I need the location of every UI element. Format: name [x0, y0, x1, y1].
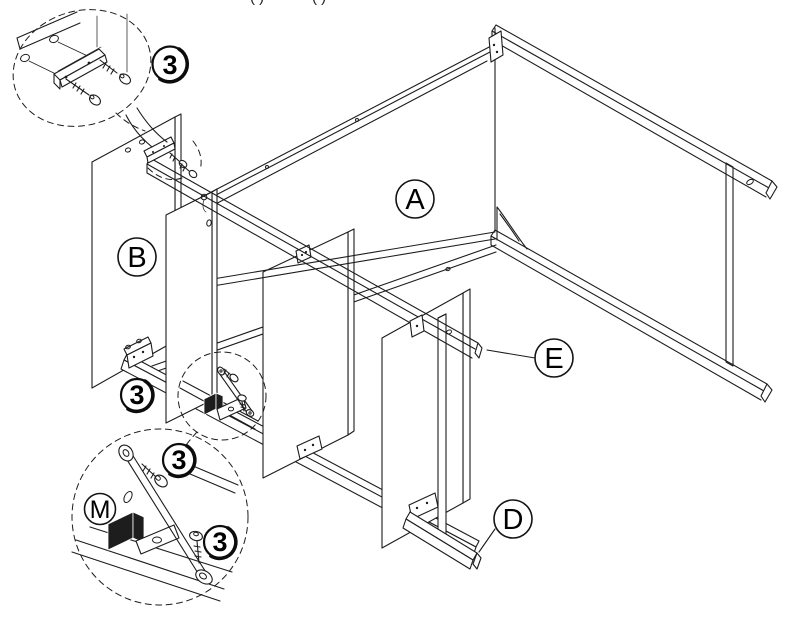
assembly-diagram: A B D E M 3 3 3 3 ( ) ( )	[0, 0, 802, 630]
leader-d	[479, 529, 495, 552]
part-label-a-text: A	[405, 184, 425, 216]
frame-assembly-a	[489, 25, 777, 402]
leader-e	[487, 350, 535, 358]
upper-stretcher-rail	[172, 45, 493, 227]
part-label-e-text: E	[544, 343, 563, 375]
hardware-callout-3-text: 3	[171, 445, 186, 475]
hardware-callout-3-left: 3	[121, 379, 153, 411]
cropped-top-text-left: ( )	[250, 0, 264, 6]
center-leg	[438, 314, 446, 541]
part-label-d-text: D	[503, 504, 524, 536]
part-label-a: A	[396, 180, 434, 218]
hardware-callout-3-bottom: 3	[204, 526, 236, 558]
screw	[100, 60, 132, 86]
part-label-d: D	[494, 500, 532, 538]
hardware-callout-3-text: 3	[129, 380, 144, 410]
screw	[66, 79, 102, 107]
screw	[189, 530, 204, 563]
hardware-callout-3-top: 3	[153, 47, 188, 82]
divider-panel-left	[166, 189, 217, 423]
hardware-callout-3-mid: 3	[163, 444, 195, 476]
part-label-e: E	[535, 339, 573, 377]
cropped-top-text-right: ( )	[312, 0, 326, 6]
hardware-callout-3-text: 3	[162, 50, 177, 80]
screw	[224, 369, 240, 383]
part-label-b: B	[118, 238, 156, 276]
part-label-b-text: B	[127, 242, 146, 274]
callout-balloon-bracket	[0, 0, 166, 144]
part-label-m-text: M	[90, 496, 111, 524]
hardware-callout-3-text: 3	[212, 527, 227, 557]
part-label-m: M	[85, 494, 116, 525]
